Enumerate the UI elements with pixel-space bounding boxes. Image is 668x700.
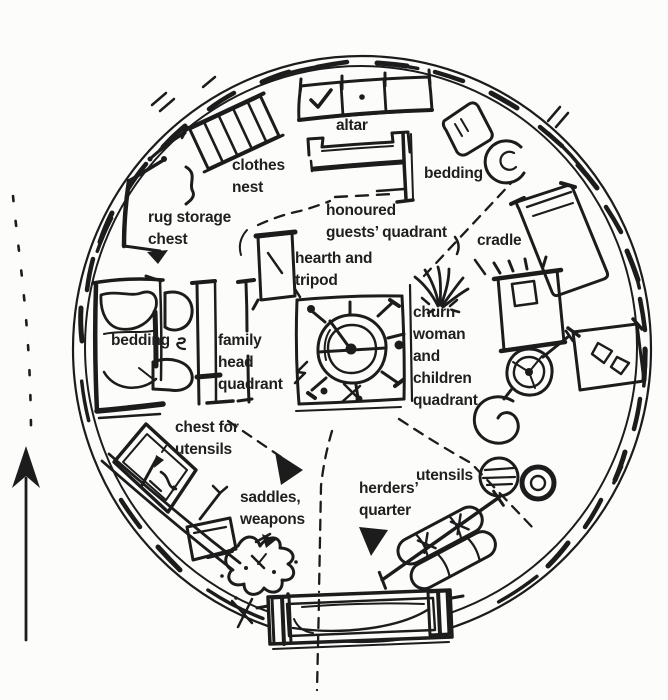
label-utensils: utensils — [416, 465, 473, 487]
label-cradle: cradle — [477, 230, 521, 252]
label-chest-for-utensils: chest for utensils — [175, 417, 239, 461]
label-rug-storage-chest: rug storage chest — [148, 207, 231, 251]
label-churn-woman-children-quadrant: churn woman and children quadrant — [413, 302, 478, 412]
yurt-floor-plan-figure: altar clothes nest rug storage chest bed… — [0, 0, 668, 700]
utensil-pots-drawing — [480, 458, 554, 499]
label-clothes-nest: clothes nest — [232, 155, 285, 199]
hearth-drawing — [295, 285, 412, 411]
label-altar: altar — [336, 115, 368, 137]
southwest-arrowhead-icon — [275, 452, 303, 485]
label-family-head-quadrant: family head quadrant — [218, 330, 283, 396]
altar-chests-drawing — [299, 70, 432, 120]
spinning-wheel-drawing — [504, 331, 573, 399]
label-saddles-weapons: saddles, weapons — [240, 487, 305, 531]
label-bedding-west: bedding — [111, 330, 170, 352]
label-bedding-ne: bedding — [424, 163, 483, 185]
label-hearth-and-tripod: hearth and tripod — [295, 248, 372, 292]
direction-arrow-icon — [12, 446, 40, 640]
side-table-drawing — [568, 319, 644, 390]
entrance-door — [257, 590, 463, 649]
exterior-dashed-arc — [13, 196, 31, 428]
herders-arrowhead-icon — [359, 527, 388, 556]
cupboard-drawing — [253, 232, 300, 309]
altar-table-drawing — [308, 132, 413, 202]
label-honoured-guests-quadrant: honoured guests’ quadrant — [326, 200, 447, 244]
pot-swirl-drawing — [474, 397, 518, 443]
cradle-drawing — [494, 257, 565, 351]
yurt-plan-sketch — [0, 0, 668, 700]
label-herders-quarter: herders’ quarter — [359, 478, 419, 522]
center-axis-line — [317, 431, 332, 690]
